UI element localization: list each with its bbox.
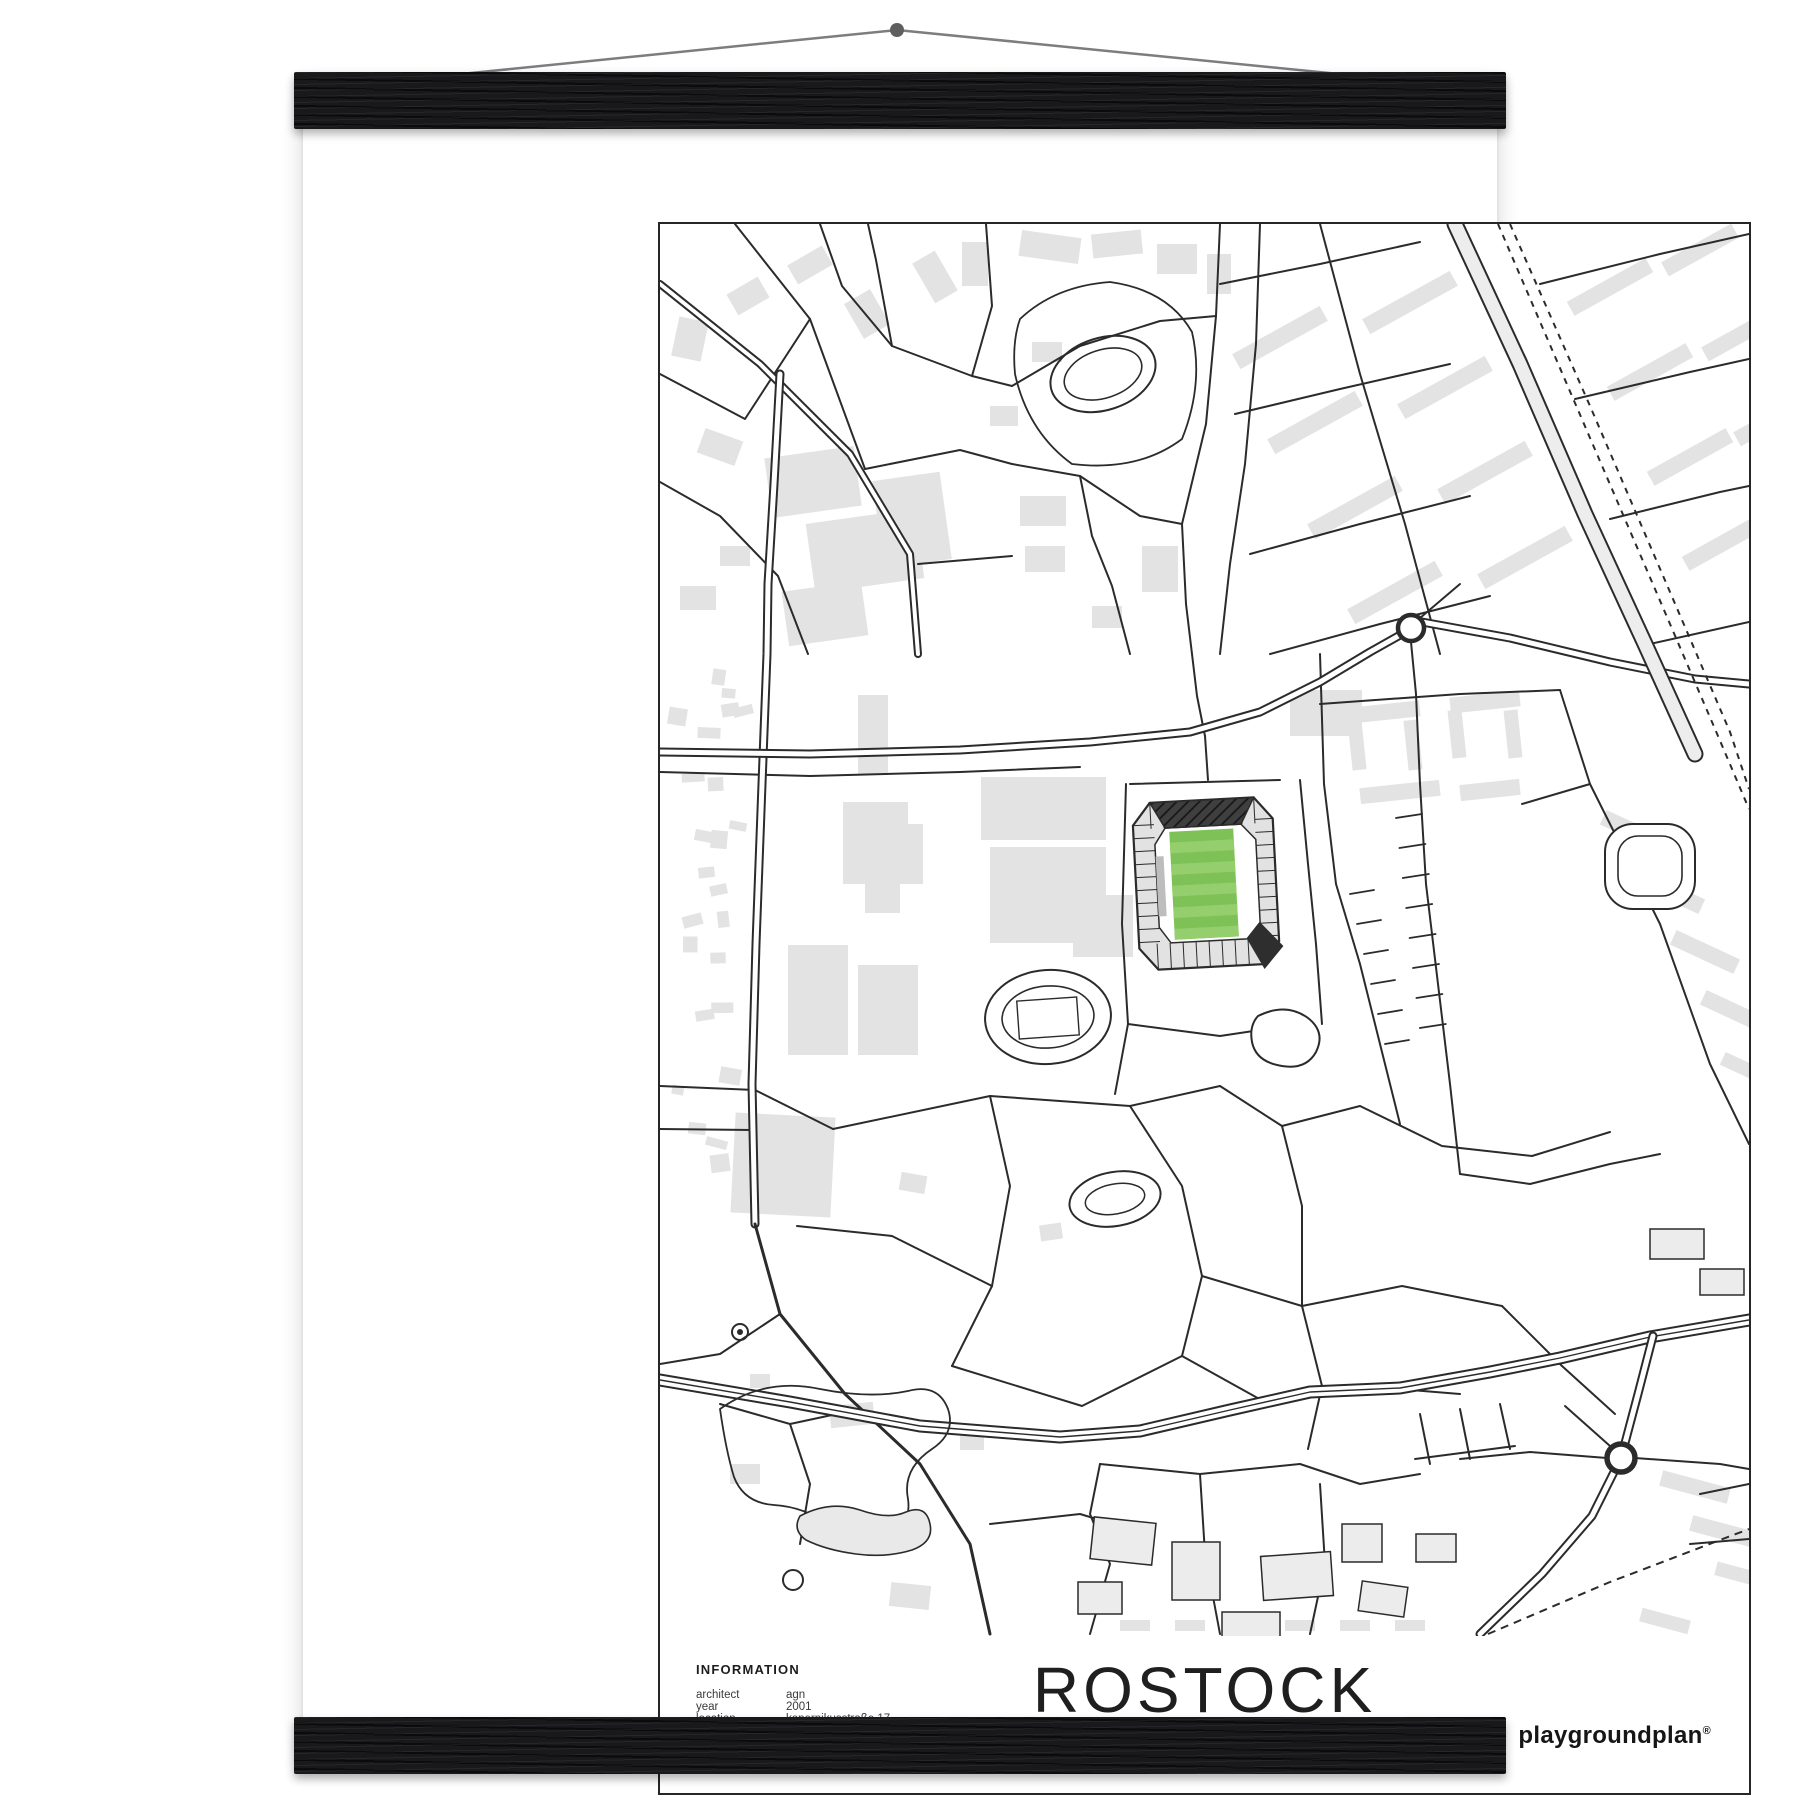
poster-title: ROSTOCK	[660, 1660, 1749, 1720]
poster-hanger-bottom-bar	[294, 1717, 1506, 1774]
poster-sheet: INFORMATION architectagnyear2001location…	[303, 80, 1497, 1756]
poster-hanger-top-bar	[294, 72, 1506, 129]
map-frame: INFORMATION architectagnyear2001location…	[658, 222, 1751, 1795]
brand-name: playgroundplan	[1518, 1722, 1702, 1749]
registered-mark: ®	[1703, 1725, 1711, 1737]
poster-mockup-scene: INFORMATION architectagnyear2001location…	[0, 0, 1800, 1800]
nail-icon	[890, 23, 904, 37]
brand-logo: playgroundplan®	[1518, 1722, 1711, 1750]
city-map	[660, 224, 1749, 1636]
